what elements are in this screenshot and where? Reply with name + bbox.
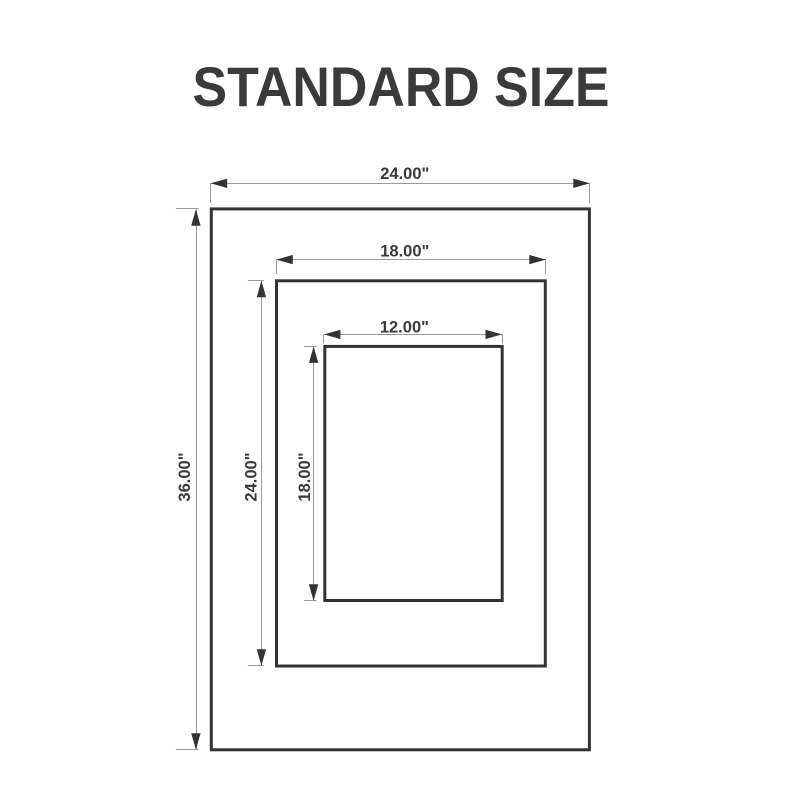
svg-text:36.00": 36.00" xyxy=(176,452,194,501)
svg-text:12.00": 12.00" xyxy=(380,319,429,337)
svg-text:18.00": 18.00" xyxy=(380,243,429,261)
svg-text:24.00": 24.00" xyxy=(380,165,429,183)
svg-text:24.00": 24.00" xyxy=(242,452,260,501)
svg-text:STANDARD SIZE: STANDARD SIZE xyxy=(193,55,610,118)
svg-text:18.00": 18.00" xyxy=(296,452,314,501)
